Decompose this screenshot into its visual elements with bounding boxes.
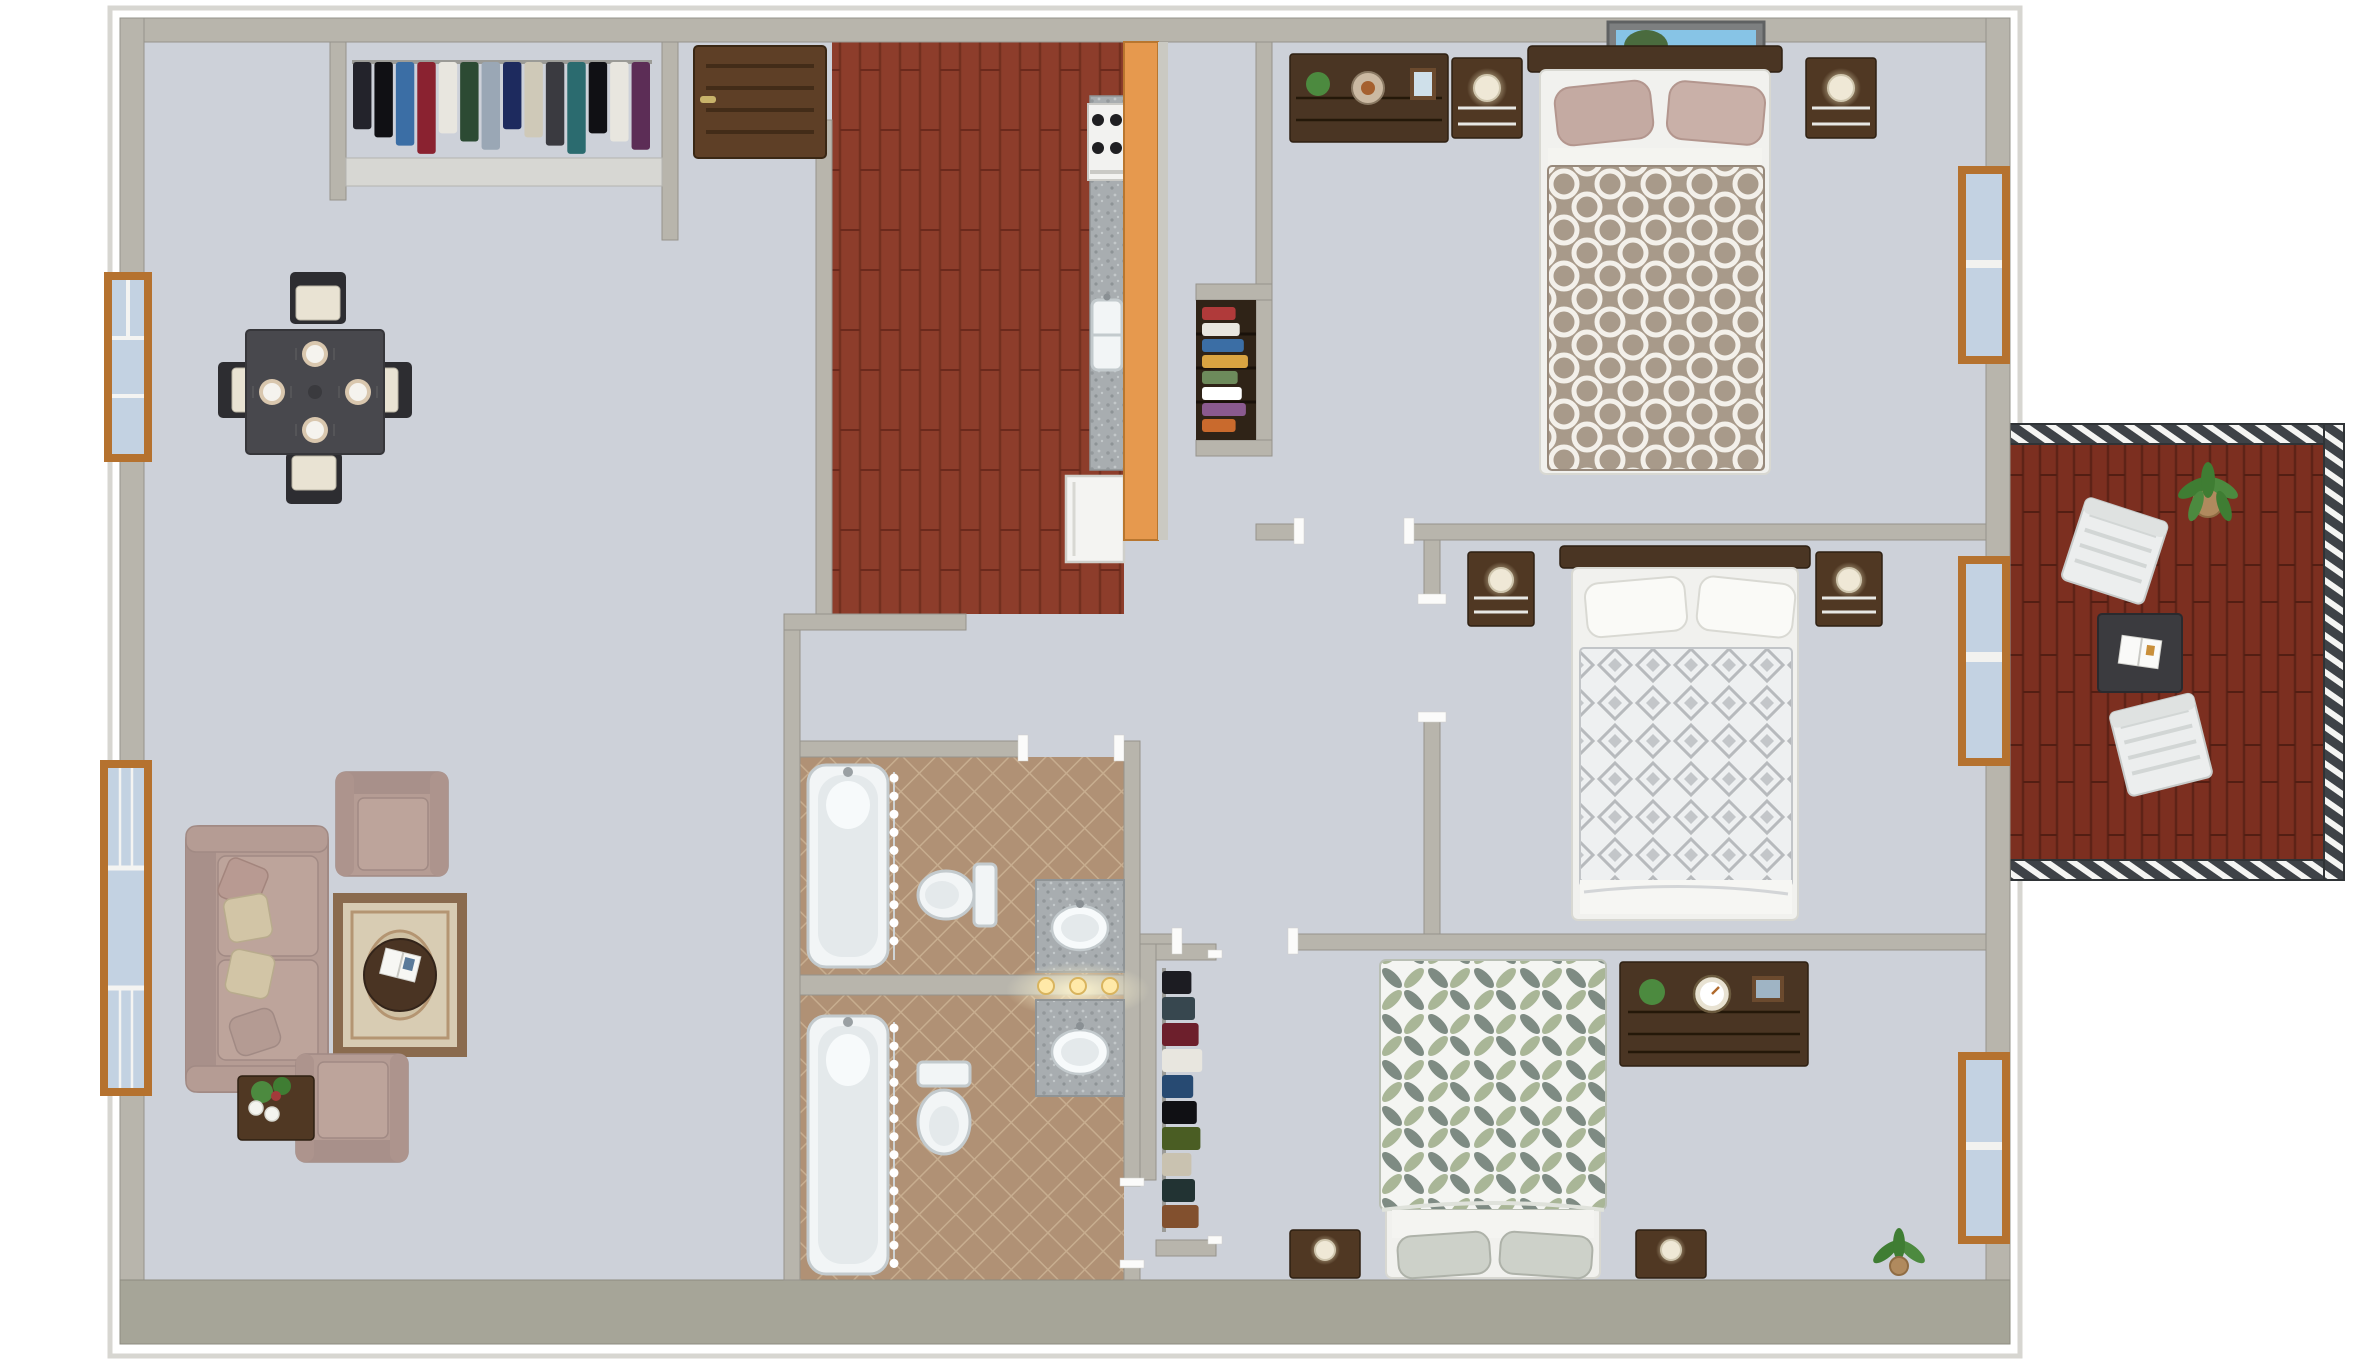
- vanity-bulb-2: [1070, 978, 1086, 994]
- bed2-diamond-duvet: [1580, 648, 1792, 886]
- bedroom3-wall-north-b: [1290, 934, 1986, 950]
- bathroom2-door-jamb-top: [1120, 1178, 1144, 1186]
- dining-chair-south: [286, 452, 342, 504]
- kitchen-wall-south: [784, 614, 966, 630]
- clothes-item: [589, 62, 607, 133]
- clothes-item: [1162, 1179, 1195, 1202]
- pantry-wall-east: [1256, 300, 1272, 440]
- bedroom1-wall-south-b: [1410, 524, 1986, 540]
- clothes-item: [1162, 1153, 1191, 1176]
- faucet-1: [1076, 900, 1084, 908]
- front-door: [694, 46, 826, 158]
- closet3-jamb-top: [1208, 950, 1222, 958]
- lamp-2a: [1489, 568, 1513, 592]
- bedroom3-window: [1958, 1052, 2010, 1244]
- closet-wall-right: [662, 42, 678, 240]
- flower: [271, 1091, 281, 1101]
- kitchen-wall-west: [816, 120, 832, 614]
- clothes-item: [396, 62, 414, 146]
- bathroom-wall-west: [784, 630, 800, 1280]
- sofa: [186, 826, 328, 1092]
- bed1-headboard: [1528, 46, 1782, 72]
- breakfast-bar: [1124, 42, 1158, 540]
- faucet-2: [1076, 1022, 1084, 1030]
- clothes-item: [1202, 403, 1246, 416]
- floor-plan-render: [0, 0, 2355, 1364]
- balcony: [2010, 424, 2344, 880]
- clothes-item: [1202, 339, 1244, 352]
- bedroom3-door-jamb-right: [1288, 928, 1298, 954]
- door-handle: [700, 96, 716, 103]
- lamp-3b: [1661, 1240, 1681, 1260]
- bed3-pillow-left: [1397, 1231, 1492, 1279]
- bed-2: [1560, 546, 1810, 920]
- kitchen-double-sink: [1092, 294, 1122, 371]
- bed1-pillow-left: [1553, 79, 1655, 147]
- pantry-closet: [1196, 300, 1256, 440]
- bed1-quatrefoil-duvet: [1548, 166, 1764, 470]
- bed-1: [1528, 46, 1782, 474]
- clothes-item: [1162, 971, 1191, 994]
- pantry-wall-bottom: [1196, 440, 1272, 456]
- bathroom-wall-east-a: [1124, 741, 1140, 1186]
- closet3-wall-bottom: [1156, 1240, 1216, 1256]
- balcony-railing-bottom: [2010, 860, 2324, 880]
- clothes-item: [1202, 323, 1240, 336]
- clothes-item: [632, 62, 650, 150]
- clothes-item: [460, 62, 478, 142]
- bed2-pillow-left: [1584, 576, 1688, 639]
- living-window: [100, 760, 152, 1096]
- bedroom1-nightstand-right: [1806, 58, 1876, 138]
- bar-back-edge: [1158, 42, 1168, 540]
- bedroom1-nightstand-left: [1452, 58, 1522, 138]
- clothes-item: [546, 62, 564, 146]
- clothes-item: [1162, 1205, 1199, 1228]
- closet3-jamb-bottom: [1208, 1236, 1222, 1244]
- bedroom1-wall-south-a: [1256, 524, 1300, 540]
- patio-table: [2098, 614, 2182, 692]
- bathtub-1: [808, 765, 894, 967]
- clothes-item: [503, 62, 521, 129]
- clothes-item: [353, 62, 371, 129]
- clothes-item: [524, 62, 542, 137]
- clothes-item: [1202, 419, 1236, 432]
- clothes-item: [1162, 1075, 1193, 1098]
- sofa-back: [186, 826, 216, 1092]
- bed3-pillow-right: [1499, 1231, 1594, 1279]
- bedroom2-door-jamb-bottom: [1418, 712, 1446, 722]
- closet-shelf-header: [346, 158, 662, 186]
- toilet-2: [918, 1062, 970, 1154]
- clothes-item: [567, 62, 585, 154]
- bed2-pillow-right: [1695, 575, 1796, 639]
- vanity-2: [1036, 1000, 1124, 1096]
- clothes-item: [1162, 1127, 1200, 1150]
- entry: [694, 46, 826, 158]
- dining-window: [104, 272, 152, 462]
- bathroom2-door-jamb-bottom: [1120, 1260, 1144, 1268]
- clothes-item: [1202, 355, 1248, 368]
- closet3-wall-top: [1156, 944, 1216, 960]
- exterior-wall-left: [120, 18, 144, 1344]
- clothes-item: [1162, 997, 1195, 1020]
- bedroom2-wall-west-a: [1424, 540, 1440, 600]
- vanity-1: [1036, 880, 1124, 972]
- bed1-pillow-right: [1666, 80, 1767, 146]
- bedroom1-window: [1958, 166, 2010, 364]
- clothes-item: [1202, 387, 1242, 400]
- bedroom1-wall-west: [1256, 42, 1272, 284]
- bedroom3-door-jamb-left: [1172, 928, 1182, 954]
- bathroom1-door-jamb-left: [1018, 735, 1028, 761]
- bed-3: [1380, 960, 1606, 1279]
- lamp-3a: [1315, 1240, 1335, 1260]
- bed3-petal-duvet: [1380, 960, 1606, 1210]
- bedroom1-dresser: [1290, 54, 1448, 142]
- bed2-headboard: [1560, 546, 1810, 568]
- dresser1-plant: [1306, 72, 1330, 96]
- balcony-sliding-door: [1958, 556, 2010, 766]
- calla-lily-1: [249, 1101, 263, 1115]
- bathroom1-door-jamb-right: [1114, 735, 1124, 761]
- dresser3-plant: [1639, 979, 1665, 1005]
- pantry-wall-top: [1196, 284, 1272, 300]
- bedroom1-door-jamb-right: [1404, 518, 1414, 544]
- vanity-bulb-1: [1038, 978, 1054, 994]
- balcony-railing-top: [2010, 424, 2324, 444]
- bedroom2-wall-west-b: [1424, 715, 1440, 950]
- lamp-1a: [1474, 75, 1500, 101]
- armchair-upper: [336, 772, 448, 876]
- bedroom3-nightstand-right: [1636, 1230, 1706, 1278]
- clothes-item: [482, 62, 500, 150]
- bedroom2-door-jamb-top: [1418, 594, 1446, 604]
- sofa-pillow-tan-1: [223, 893, 274, 944]
- bedroom1-door-jamb-left: [1294, 518, 1304, 544]
- shower-head-2: [843, 1017, 853, 1027]
- calla-lily-2: [265, 1107, 279, 1121]
- dining-chair-north: [290, 272, 346, 324]
- closet-wall-left: [330, 42, 346, 200]
- sofa-arm-top: [186, 826, 328, 852]
- clothes-item: [439, 62, 457, 133]
- clothes-item: [1162, 1023, 1199, 1046]
- kitchen: [832, 42, 1126, 614]
- bed3-sheet-band: [1392, 1210, 1594, 1238]
- range-stove: [1088, 104, 1126, 180]
- balcony-railing-right: [2324, 424, 2344, 880]
- sofa-pillow-tan-2: [224, 948, 276, 1000]
- shower-head-1: [843, 767, 853, 777]
- round-ottoman: [364, 939, 436, 1011]
- refrigerator: [1066, 476, 1124, 562]
- clothes-item: [1202, 307, 1236, 320]
- clothes-item: [1162, 1101, 1197, 1124]
- clothes-item: [1202, 371, 1238, 384]
- clothes-item: [1162, 1049, 1202, 1072]
- clothes-item: [417, 62, 435, 154]
- side-table: [238, 1076, 314, 1140]
- lamp-1b: [1828, 75, 1854, 101]
- vanity-bulb-3: [1102, 978, 1118, 994]
- bathtub-2: [808, 1016, 894, 1274]
- bedroom2-nightstand-left: [1468, 552, 1534, 626]
- floor-plan-stage: [0, 0, 2355, 1364]
- bedroom2-nightstand-right: [1816, 552, 1882, 626]
- bedroom3-dresser: [1620, 962, 1808, 1066]
- open-magazine: [2118, 635, 2162, 668]
- clothes-item: [374, 62, 392, 137]
- clothes-item: [610, 62, 628, 142]
- lamp-2b: [1837, 568, 1861, 592]
- bedroom3-nightstand-left: [1290, 1230, 1360, 1278]
- bathroom1-wall-north: [800, 741, 1026, 757]
- exterior-wall-bottom: [120, 1280, 2010, 1344]
